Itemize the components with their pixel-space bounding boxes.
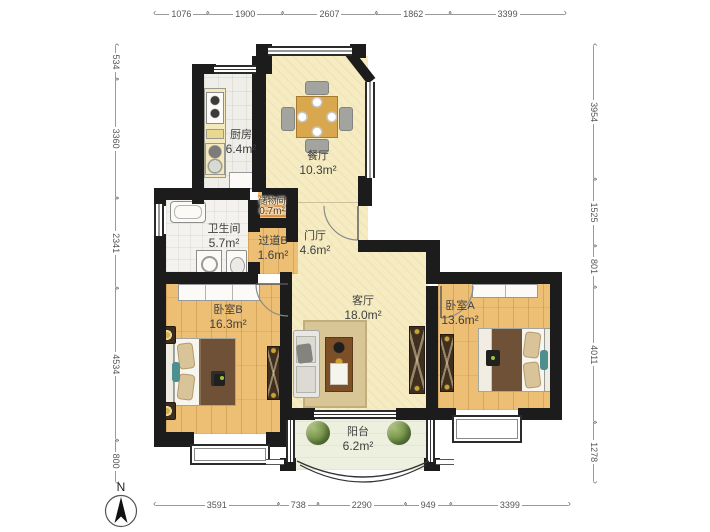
stove [206,92,224,124]
foyer-threshold-line [292,202,358,203]
dimension-value: 534 [110,53,122,72]
laptop-dot-a [491,356,495,360]
dimension-value: 1525 [588,201,600,225]
kitchen-drawer [206,129,224,139]
dimension-segment: ‹2607› [283,8,377,20]
bed-a-pillow [522,361,541,389]
dimension-value: 2290 [350,499,374,511]
tv-cabinet-bedroom-b [267,346,280,400]
dimension-segment: ‹4534› [110,288,122,440]
dimension-segment: ‹2290› [318,499,405,511]
balcony-window-left [286,420,295,462]
wall [426,272,562,284]
tv-cabinet-bedroom-a [440,334,454,392]
wall [396,408,430,420]
north-label: N [117,480,126,494]
wall [154,188,250,200]
dimension-value: 1076 [169,8,193,20]
wall [154,432,194,447]
wall [286,188,298,242]
dimension-segment: ‹1076› [155,8,208,20]
dimension-value: 3399 [496,8,520,20]
dimension-value: 3954 [588,100,600,124]
dimension-value: 2607 [317,8,341,20]
wall [358,240,440,252]
bay-window-bedroom-a [452,415,522,443]
dimension-value: 738 [289,499,308,511]
north-compass: N [98,478,144,532]
dimension-value: 3360 [110,127,122,151]
dimension-segment: ‹801› [588,246,600,287]
window-bathroom [154,204,164,236]
wall [281,408,315,420]
dimension-segment: ‹3360› [110,79,122,198]
dimension-value: 801 [588,257,600,276]
potted-plant [306,421,330,445]
wall [550,272,562,420]
dimension-segment: ‹534› [110,45,122,79]
wall [154,272,258,284]
dimension-segment: ‹3399› [450,8,565,20]
window-dining-east [365,82,375,178]
dimension-segment: ‹2341› [110,198,122,288]
dimension-value: 4534 [110,352,122,376]
dimension-strip-right: ‹3954›‹1525›‹801›‹4011›‹1278› [588,45,600,482]
dimension-segment: ‹1862› [376,8,450,20]
dimension-value: 3399 [498,499,522,511]
dimension-segment: ‹3954› [588,45,600,179]
dining-chair-south [305,139,329,153]
floor-plan: 厨房 6.4m² 餐厅 10.3m² 储物间 0.7m² 卫生间 5.7m² 过… [0,0,710,532]
potted-plant [387,421,411,445]
bay-window-dining [268,46,352,56]
dimension-segment: ‹1900› [208,8,283,20]
dimension-segment: ‹3591› [155,499,279,511]
sofa-cushion [296,366,316,393]
bed-a-pillow [522,331,541,359]
dimension-segment: ‹800› [110,440,122,482]
dimension-value: 2341 [110,231,122,255]
wall [154,234,166,447]
wardrobe-bedroom-a [472,284,538,298]
dimension-strip-left: ‹534›‹3360›‹2341›‹4534›‹800› [110,45,122,482]
dimension-segment: ‹4011› [588,287,600,422]
dimension-segment: ‹738› [279,499,318,511]
bed-b-accent-pillow [172,362,180,382]
kitchen-sink [205,143,225,175]
dimension-value: 1900 [233,8,257,20]
wall [358,176,372,206]
dimension-value: 800 [110,452,122,471]
window-sill [266,459,284,465]
wardrobe-bedroom-b [178,284,260,301]
wall [252,56,266,192]
tv-cabinet-living [409,326,425,394]
dimension-segment: ‹3399› [451,499,569,511]
dining-table [296,96,338,138]
wall [426,286,438,420]
dimension-value: 1278 [588,440,600,464]
dimension-value: 1862 [401,8,425,20]
sofa-throw-pillow [296,343,313,364]
bed-a-accent-pillow [540,350,548,370]
dimension-segment: ‹1525› [588,179,600,246]
dimension-value: 4011 [588,343,600,366]
bathtub [170,201,206,223]
window-sill [436,459,454,465]
laptop-dot-b [220,376,224,380]
balcony-sliding-door [314,410,396,419]
dining-chair-north [305,81,329,95]
dimension-value: 949 [419,499,438,511]
window-kitchen [214,65,256,74]
coffee-table-tray [330,363,348,385]
dimension-segment: ‹949› [405,499,450,511]
dimension-strip-bottom: ‹3591›‹738›‹2290›‹949›‹3399› [155,499,569,511]
dining-chair-east [339,107,353,131]
dining-chair-west [281,107,295,131]
dimension-strip-top: ‹1076›‹1900›‹2607›‹1862›‹3399› [155,8,565,20]
dimension-segment: ‹1278› [588,422,600,482]
balcony-window-right [426,420,435,462]
bay-window-bedroom-b [190,444,270,465]
wall [192,64,204,204]
wall [518,408,562,420]
dimension-value: 3591 [205,499,229,511]
